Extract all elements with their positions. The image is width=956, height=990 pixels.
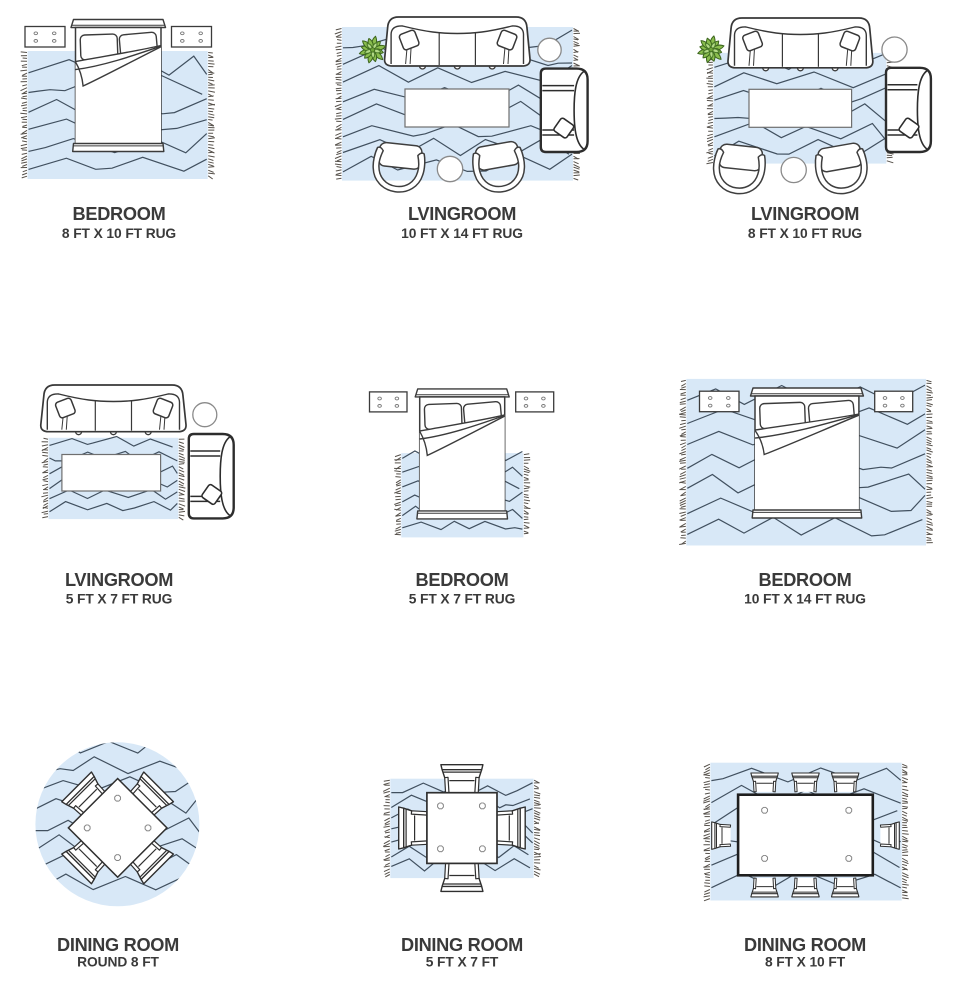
svg-text:8 FT X 10 FT RUG: 8 FT X 10 FT RUG <box>62 226 176 241</box>
svg-text:BEDROOM: BEDROOM <box>73 204 166 224</box>
svg-text:8 FT X 10 FT: 8 FT X 10 FT <box>765 955 846 970</box>
svg-text:BEDROOM: BEDROOM <box>759 570 852 590</box>
svg-text:DINING ROOM: DINING ROOM <box>744 935 866 955</box>
svg-text:5 FT X 7 FT RUG: 5 FT X 7 FT RUG <box>409 592 516 607</box>
svg-text:LVINGROOM: LVINGROOM <box>751 204 859 224</box>
svg-text:10 FT X 14 FT RUG: 10 FT X 14 FT RUG <box>744 592 866 607</box>
svg-text:DINING ROOM: DINING ROOM <box>401 935 523 955</box>
svg-text:5 FT X 7 FT RUG: 5 FT X 7 FT RUG <box>66 592 173 607</box>
svg-text:LVINGROOM: LVINGROOM <box>408 204 516 224</box>
svg-text:ROUND 8 FT: ROUND 8 FT <box>77 955 159 970</box>
svg-text:5 FT X 7 FT: 5 FT X 7 FT <box>426 955 499 970</box>
svg-text:DINING ROOM: DINING ROOM <box>57 935 179 955</box>
svg-text:10 FT X 14 FT RUG: 10 FT X 14 FT RUG <box>401 226 523 241</box>
svg-text:8 FT X 10 FT RUG: 8 FT X 10 FT RUG <box>748 226 862 241</box>
svg-text:LVINGROOM: LVINGROOM <box>65 570 173 590</box>
svg-text:BEDROOM: BEDROOM <box>416 570 509 590</box>
